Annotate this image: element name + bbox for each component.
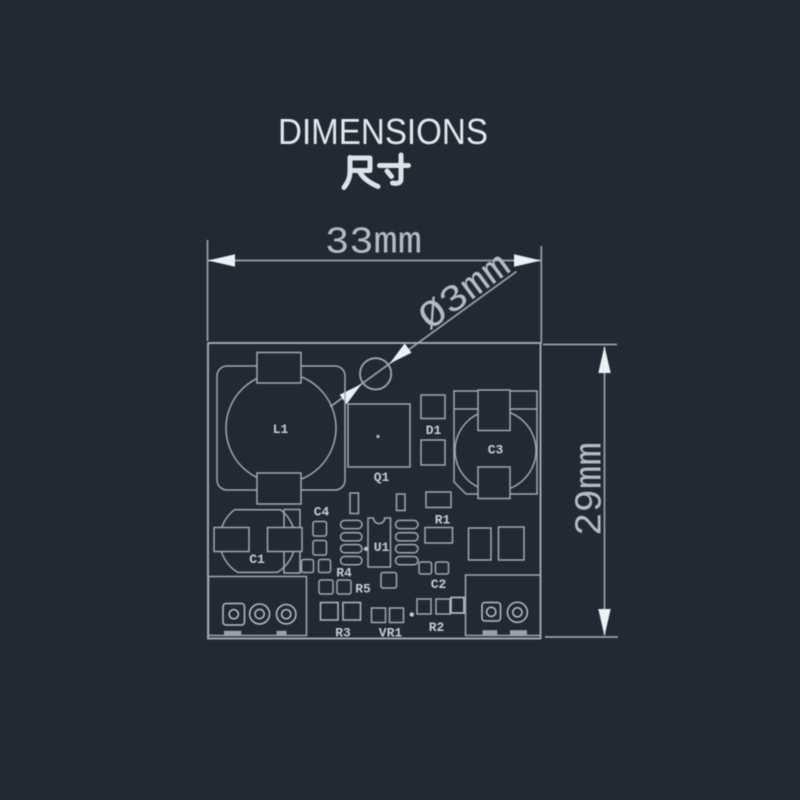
svg-text:C3: C3 xyxy=(488,443,504,458)
svg-text:C2: C2 xyxy=(431,577,447,592)
svg-text:Q1: Q1 xyxy=(374,470,390,485)
svg-text:C4: C4 xyxy=(314,505,330,520)
svg-text:R2: R2 xyxy=(429,620,445,635)
svg-text:VR1: VR1 xyxy=(379,626,403,641)
svg-text:D1: D1 xyxy=(426,423,442,438)
svg-text:R5: R5 xyxy=(355,582,371,597)
svg-text:29mm: 29mm xyxy=(570,442,613,536)
svg-text:R4: R4 xyxy=(336,566,352,581)
svg-text:C1: C1 xyxy=(249,552,265,567)
svg-text:33mm: 33mm xyxy=(325,222,422,265)
svg-text:U1: U1 xyxy=(374,540,390,555)
svg-text:L1: L1 xyxy=(273,422,289,437)
svg-text:DIMENSIONS: DIMENSIONS xyxy=(278,111,488,152)
svg-text:R1: R1 xyxy=(435,513,451,528)
svg-text:R3: R3 xyxy=(335,626,351,641)
